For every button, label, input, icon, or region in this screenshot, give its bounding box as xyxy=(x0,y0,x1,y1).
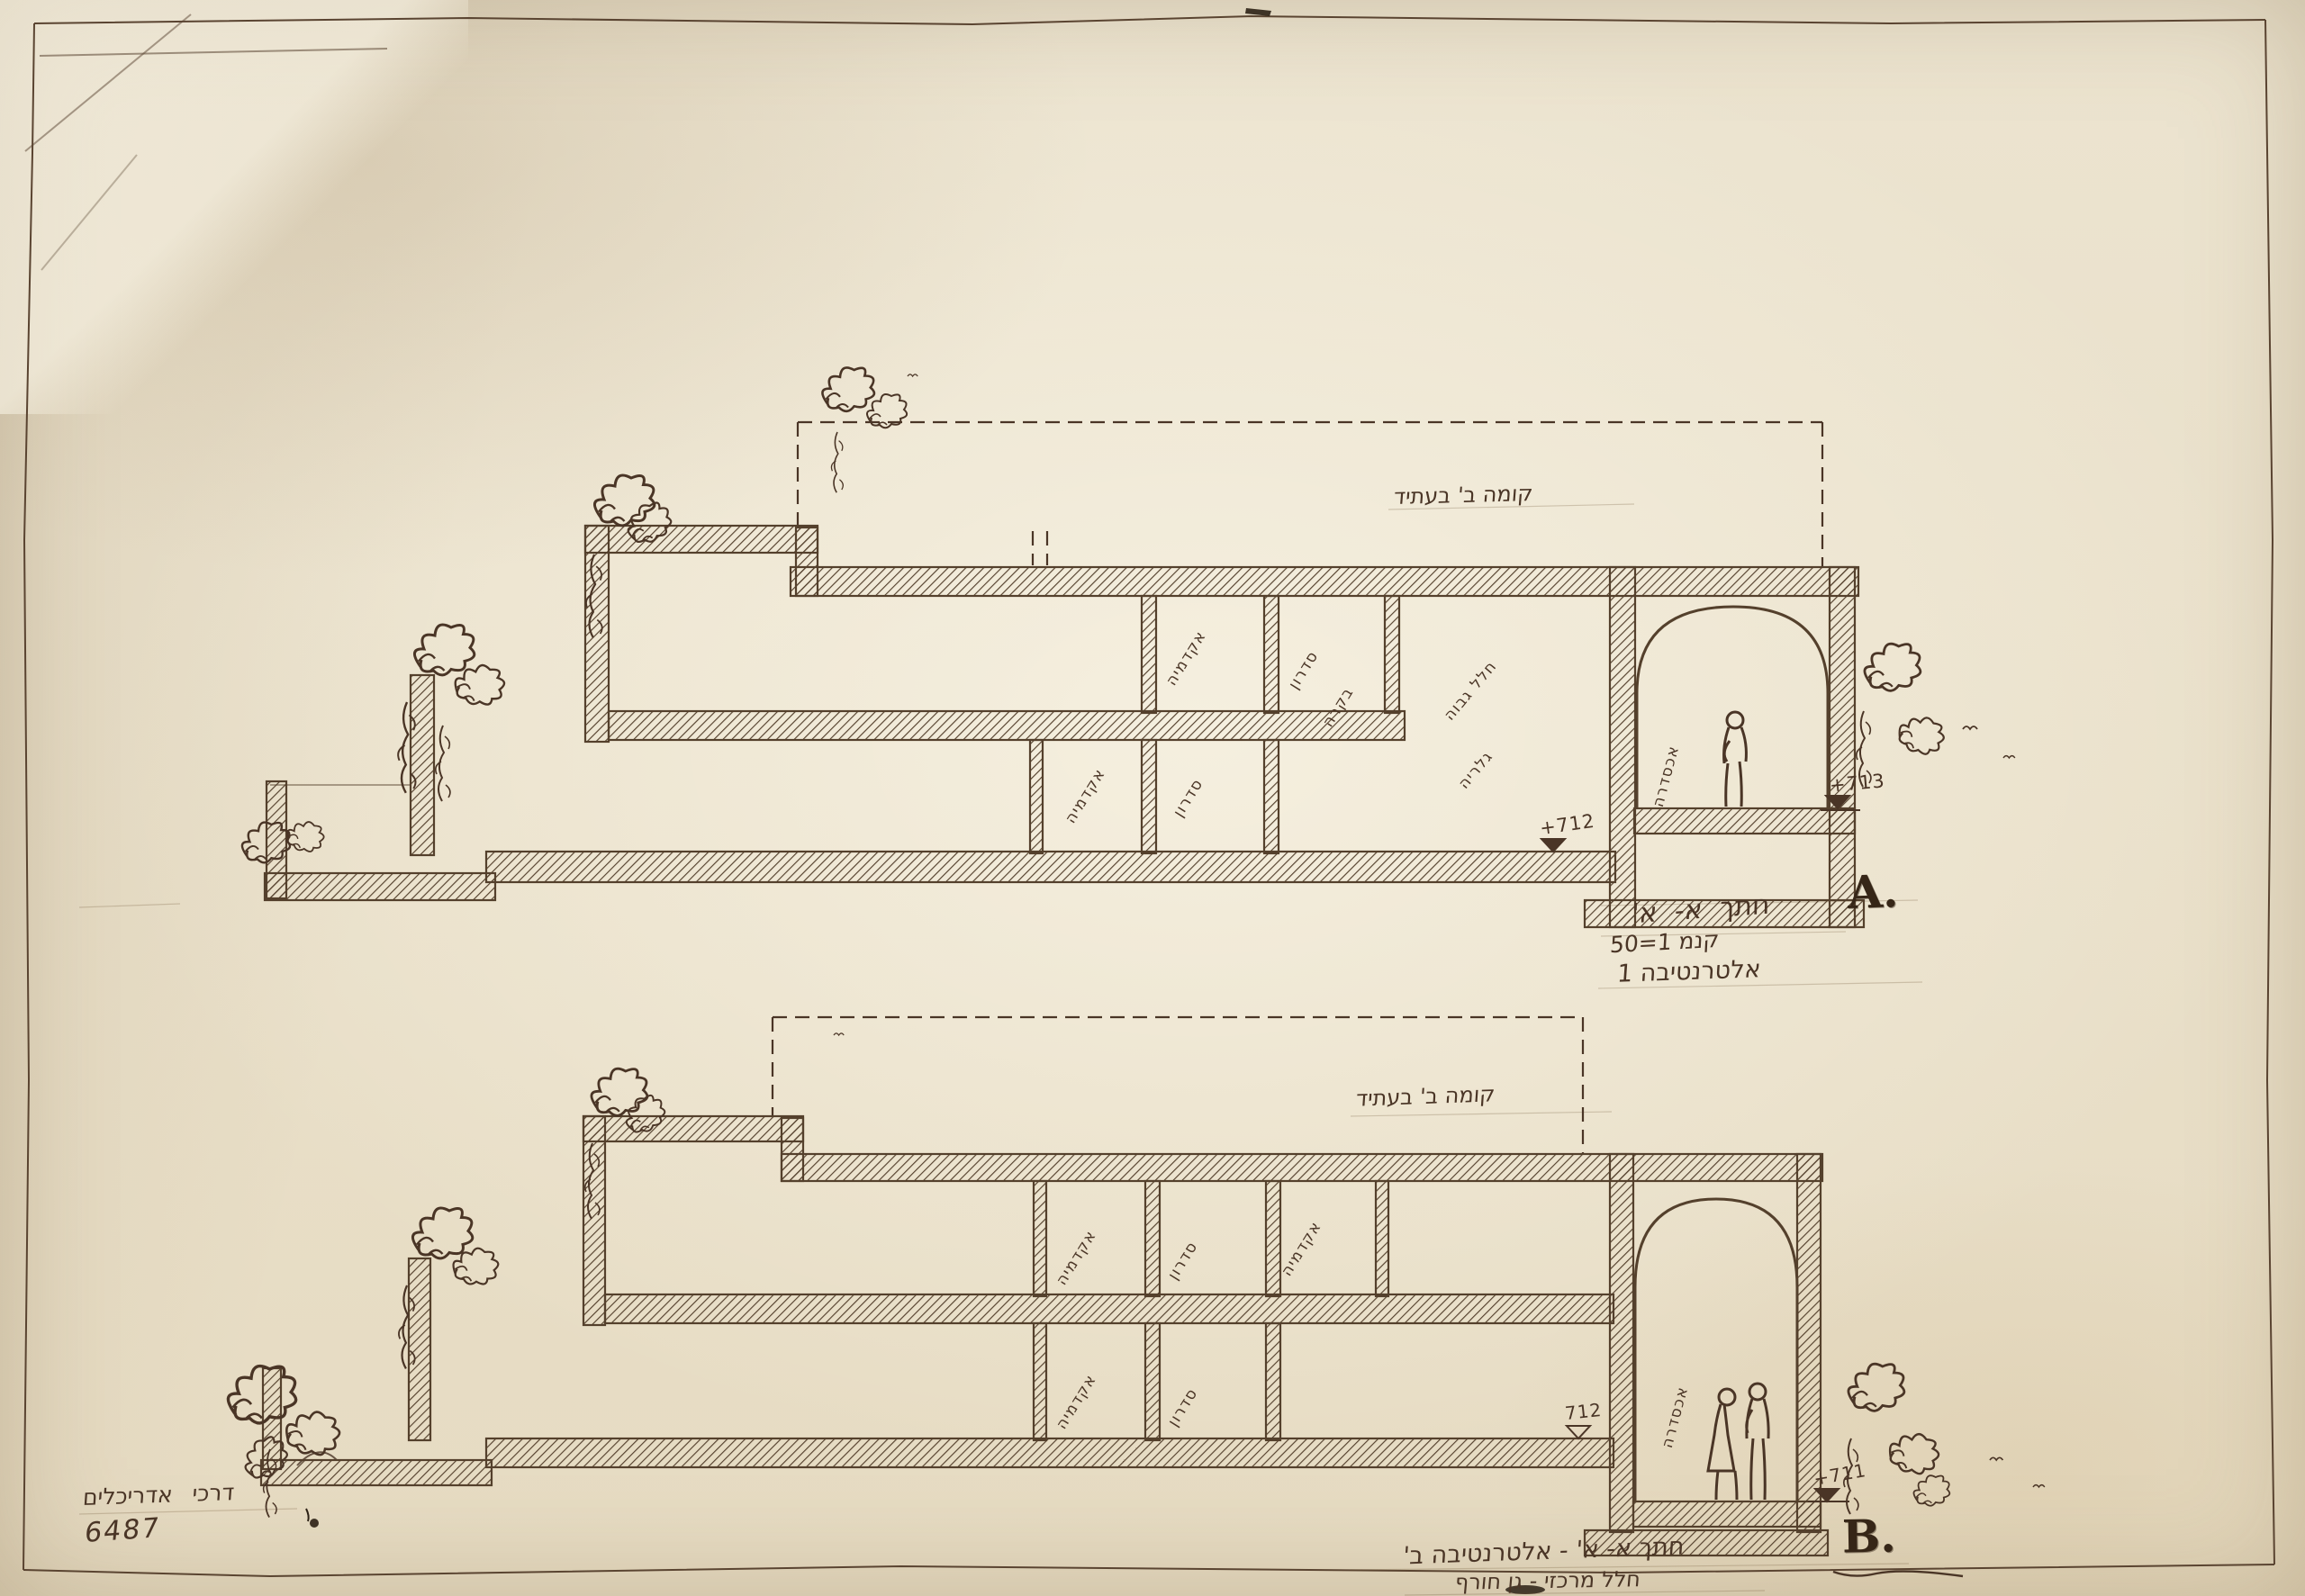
portico-arch-b xyxy=(1635,1199,1797,1501)
firm-name: דרכי אדריכלים xyxy=(83,1481,235,1509)
walls-and-slabs-a xyxy=(265,526,1864,927)
section-a-scale: קנמ 1=50 xyxy=(1609,928,1720,956)
level-value-a-right: +713 xyxy=(1829,771,1885,795)
section-b-future-floor-label: קומה ב' בעתיד xyxy=(1356,1083,1496,1109)
person-figures-b xyxy=(1708,1384,1768,1500)
level-value-b-mid: 712 xyxy=(1564,1401,1603,1422)
drawing-sheet: קומה ב' בעתיד חתך א- א' קנמ 1=50 אלטרנטי… xyxy=(0,0,2305,1596)
future-floor-outline-a xyxy=(798,422,1822,566)
pencil-guides xyxy=(79,504,1922,1595)
vegetation-a xyxy=(242,367,2015,862)
section-b-subtitle: חלל מרכזי - גן חורף xyxy=(1455,1568,1641,1593)
marker-b-underline xyxy=(1833,1572,1963,1576)
section-a-alternative: אלטרנטיבה 1 xyxy=(1617,957,1761,987)
ink-smudges xyxy=(306,8,1545,1594)
section-a-future-floor-label: קומה ב' בעתיד xyxy=(1394,482,1533,508)
walls-and-slabs-b xyxy=(261,1116,1828,1555)
section-b-drawing xyxy=(228,1017,2044,1576)
drawing-number: 6487 xyxy=(84,1515,162,1547)
drawing-linework xyxy=(0,0,2305,1596)
section-a-drawing xyxy=(242,367,2015,927)
section-b-marker: B. xyxy=(1842,1513,1897,1559)
person-figure-a xyxy=(1724,712,1747,807)
section-a-marker: A. xyxy=(1847,869,1899,915)
